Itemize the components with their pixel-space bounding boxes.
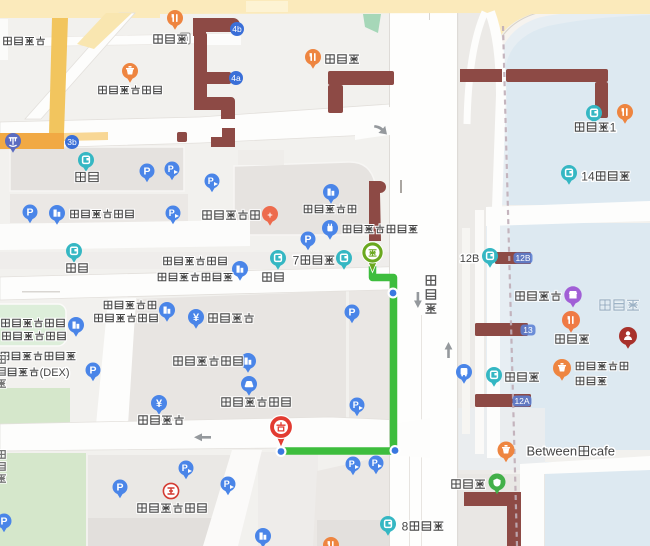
svg-text:Between: Between (527, 444, 578, 459)
svg-text:cafe: cafe (590, 444, 615, 459)
svg-text:4b: 4b (232, 24, 242, 34)
svg-text:P: P (169, 208, 175, 218)
svg-text:¥: ¥ (193, 312, 200, 324)
svg-text:12B: 12B (515, 253, 530, 263)
svg-text:P: P (26, 207, 33, 219)
svg-text:12B: 12B (460, 253, 480, 265)
svg-text:(DEX): (DEX) (40, 367, 70, 379)
svg-text:P: P (372, 458, 378, 468)
svg-text:13: 13 (523, 325, 533, 335)
svg-text:+: + (267, 210, 272, 220)
svg-text:P: P (89, 365, 96, 377)
svg-text:P: P (208, 176, 214, 186)
svg-text:3b: 3b (67, 137, 77, 147)
svg-text:P: P (143, 166, 150, 178)
svg-text:8: 8 (402, 519, 409, 533)
svg-text:P: P (353, 400, 359, 410)
svg-text:P: P (348, 307, 355, 319)
svg-text:14: 14 (581, 169, 595, 183)
svg-text:4a: 4a (231, 73, 241, 83)
svg-text:12A: 12A (514, 396, 529, 406)
svg-text:P: P (304, 234, 311, 246)
svg-text:P: P (116, 482, 123, 494)
svg-text:7: 7 (293, 253, 300, 267)
svg-text:P: P (349, 459, 355, 469)
svg-text:P: P (224, 479, 230, 489)
svg-text:1: 1 (610, 120, 617, 134)
svg-text:P: P (168, 164, 174, 174)
svg-text:P: P (0, 516, 7, 528)
svg-text:¥: ¥ (156, 398, 163, 410)
svg-text:P: P (182, 463, 188, 473)
